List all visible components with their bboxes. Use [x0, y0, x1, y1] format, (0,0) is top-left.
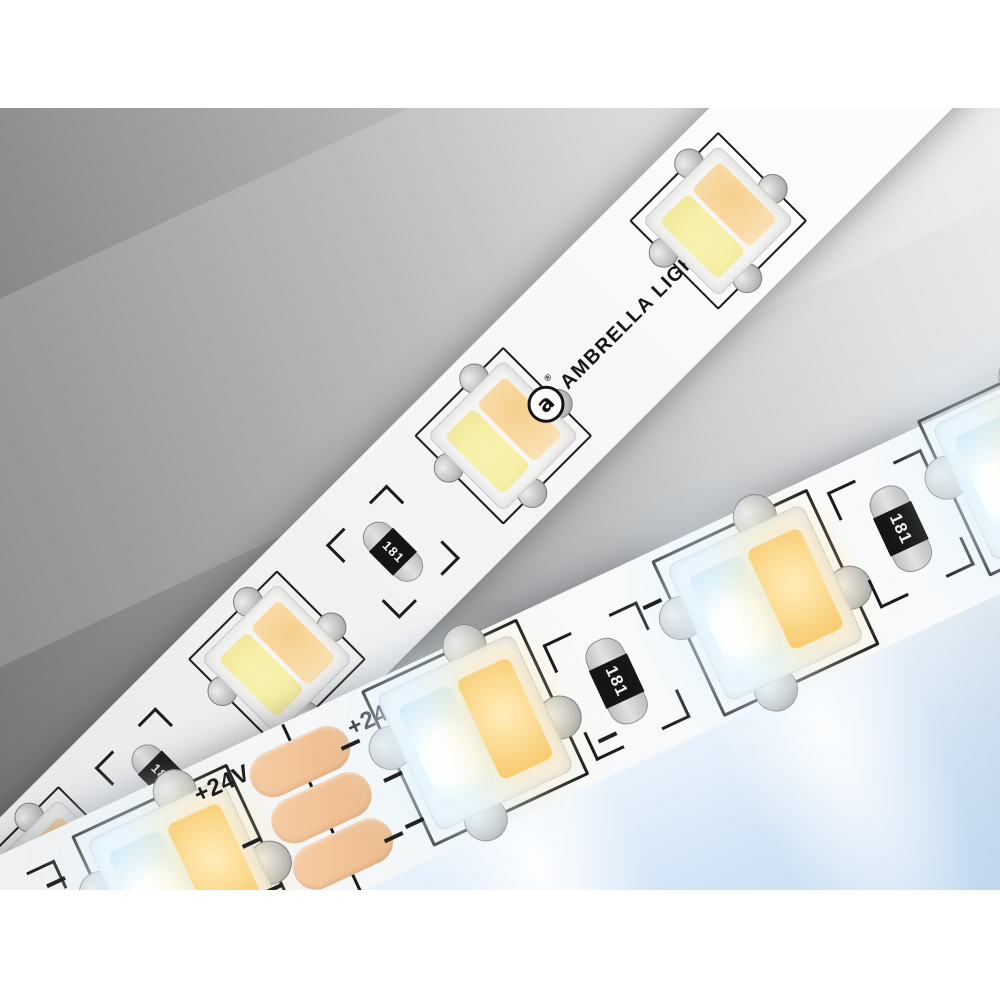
resistor-body: 181 — [579, 632, 653, 730]
cut-bracket-icon — [425, 540, 460, 575]
resistor-chip: 181 — [369, 528, 417, 576]
resistor: 181 — [326, 485, 460, 619]
resistor-body: 181 — [356, 515, 430, 589]
led-package — [375, 633, 574, 832]
photo-content-area: 181 — [0, 108, 1000, 890]
cut-bracket-icon — [95, 750, 130, 785]
cut-bracket-icon — [650, 689, 691, 730]
resistor-body: 181 — [864, 479, 938, 577]
resistor-code-label: 181 — [601, 663, 632, 700]
cut-bracket-icon — [868, 568, 909, 609]
logo-letter: a — [533, 391, 559, 417]
resistor-code-label: 181 — [885, 510, 916, 547]
cut-dash-icon — [642, 598, 662, 610]
led-package — [666, 503, 865, 702]
resistor-chip: 181 — [873, 501, 929, 557]
cut-bracket-icon — [934, 537, 975, 578]
product-photo: 181 — [0, 0, 1000, 1000]
registered-trademark-icon: ® — [542, 372, 554, 384]
cut-bracket-icon — [138, 707, 173, 742]
cut-bracket-icon — [542, 632, 583, 673]
cut-bracket-icon — [382, 584, 417, 619]
cut-bracket-icon — [827, 480, 868, 521]
resistor-chip: 181 — [589, 653, 645, 709]
emitter-cool-white-lit — [952, 414, 1000, 538]
cut-bracket-icon — [369, 485, 404, 520]
cut-bracket-icon — [326, 528, 361, 563]
resistor-code-label: 181 — [379, 538, 407, 566]
